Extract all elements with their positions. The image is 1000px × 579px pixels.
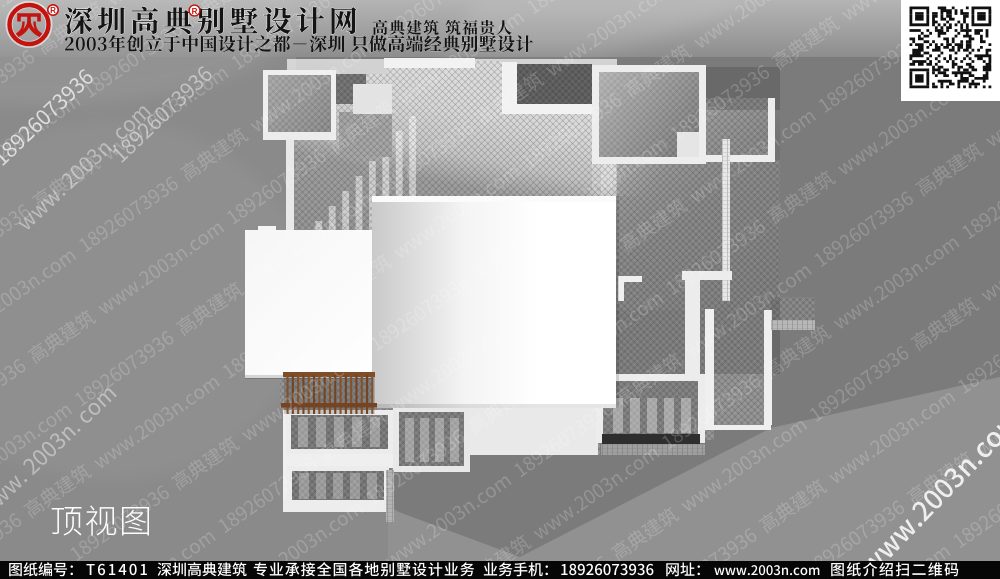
svg-text:R: R <box>192 7 198 16</box>
svg-text:R: R <box>50 6 56 15</box>
